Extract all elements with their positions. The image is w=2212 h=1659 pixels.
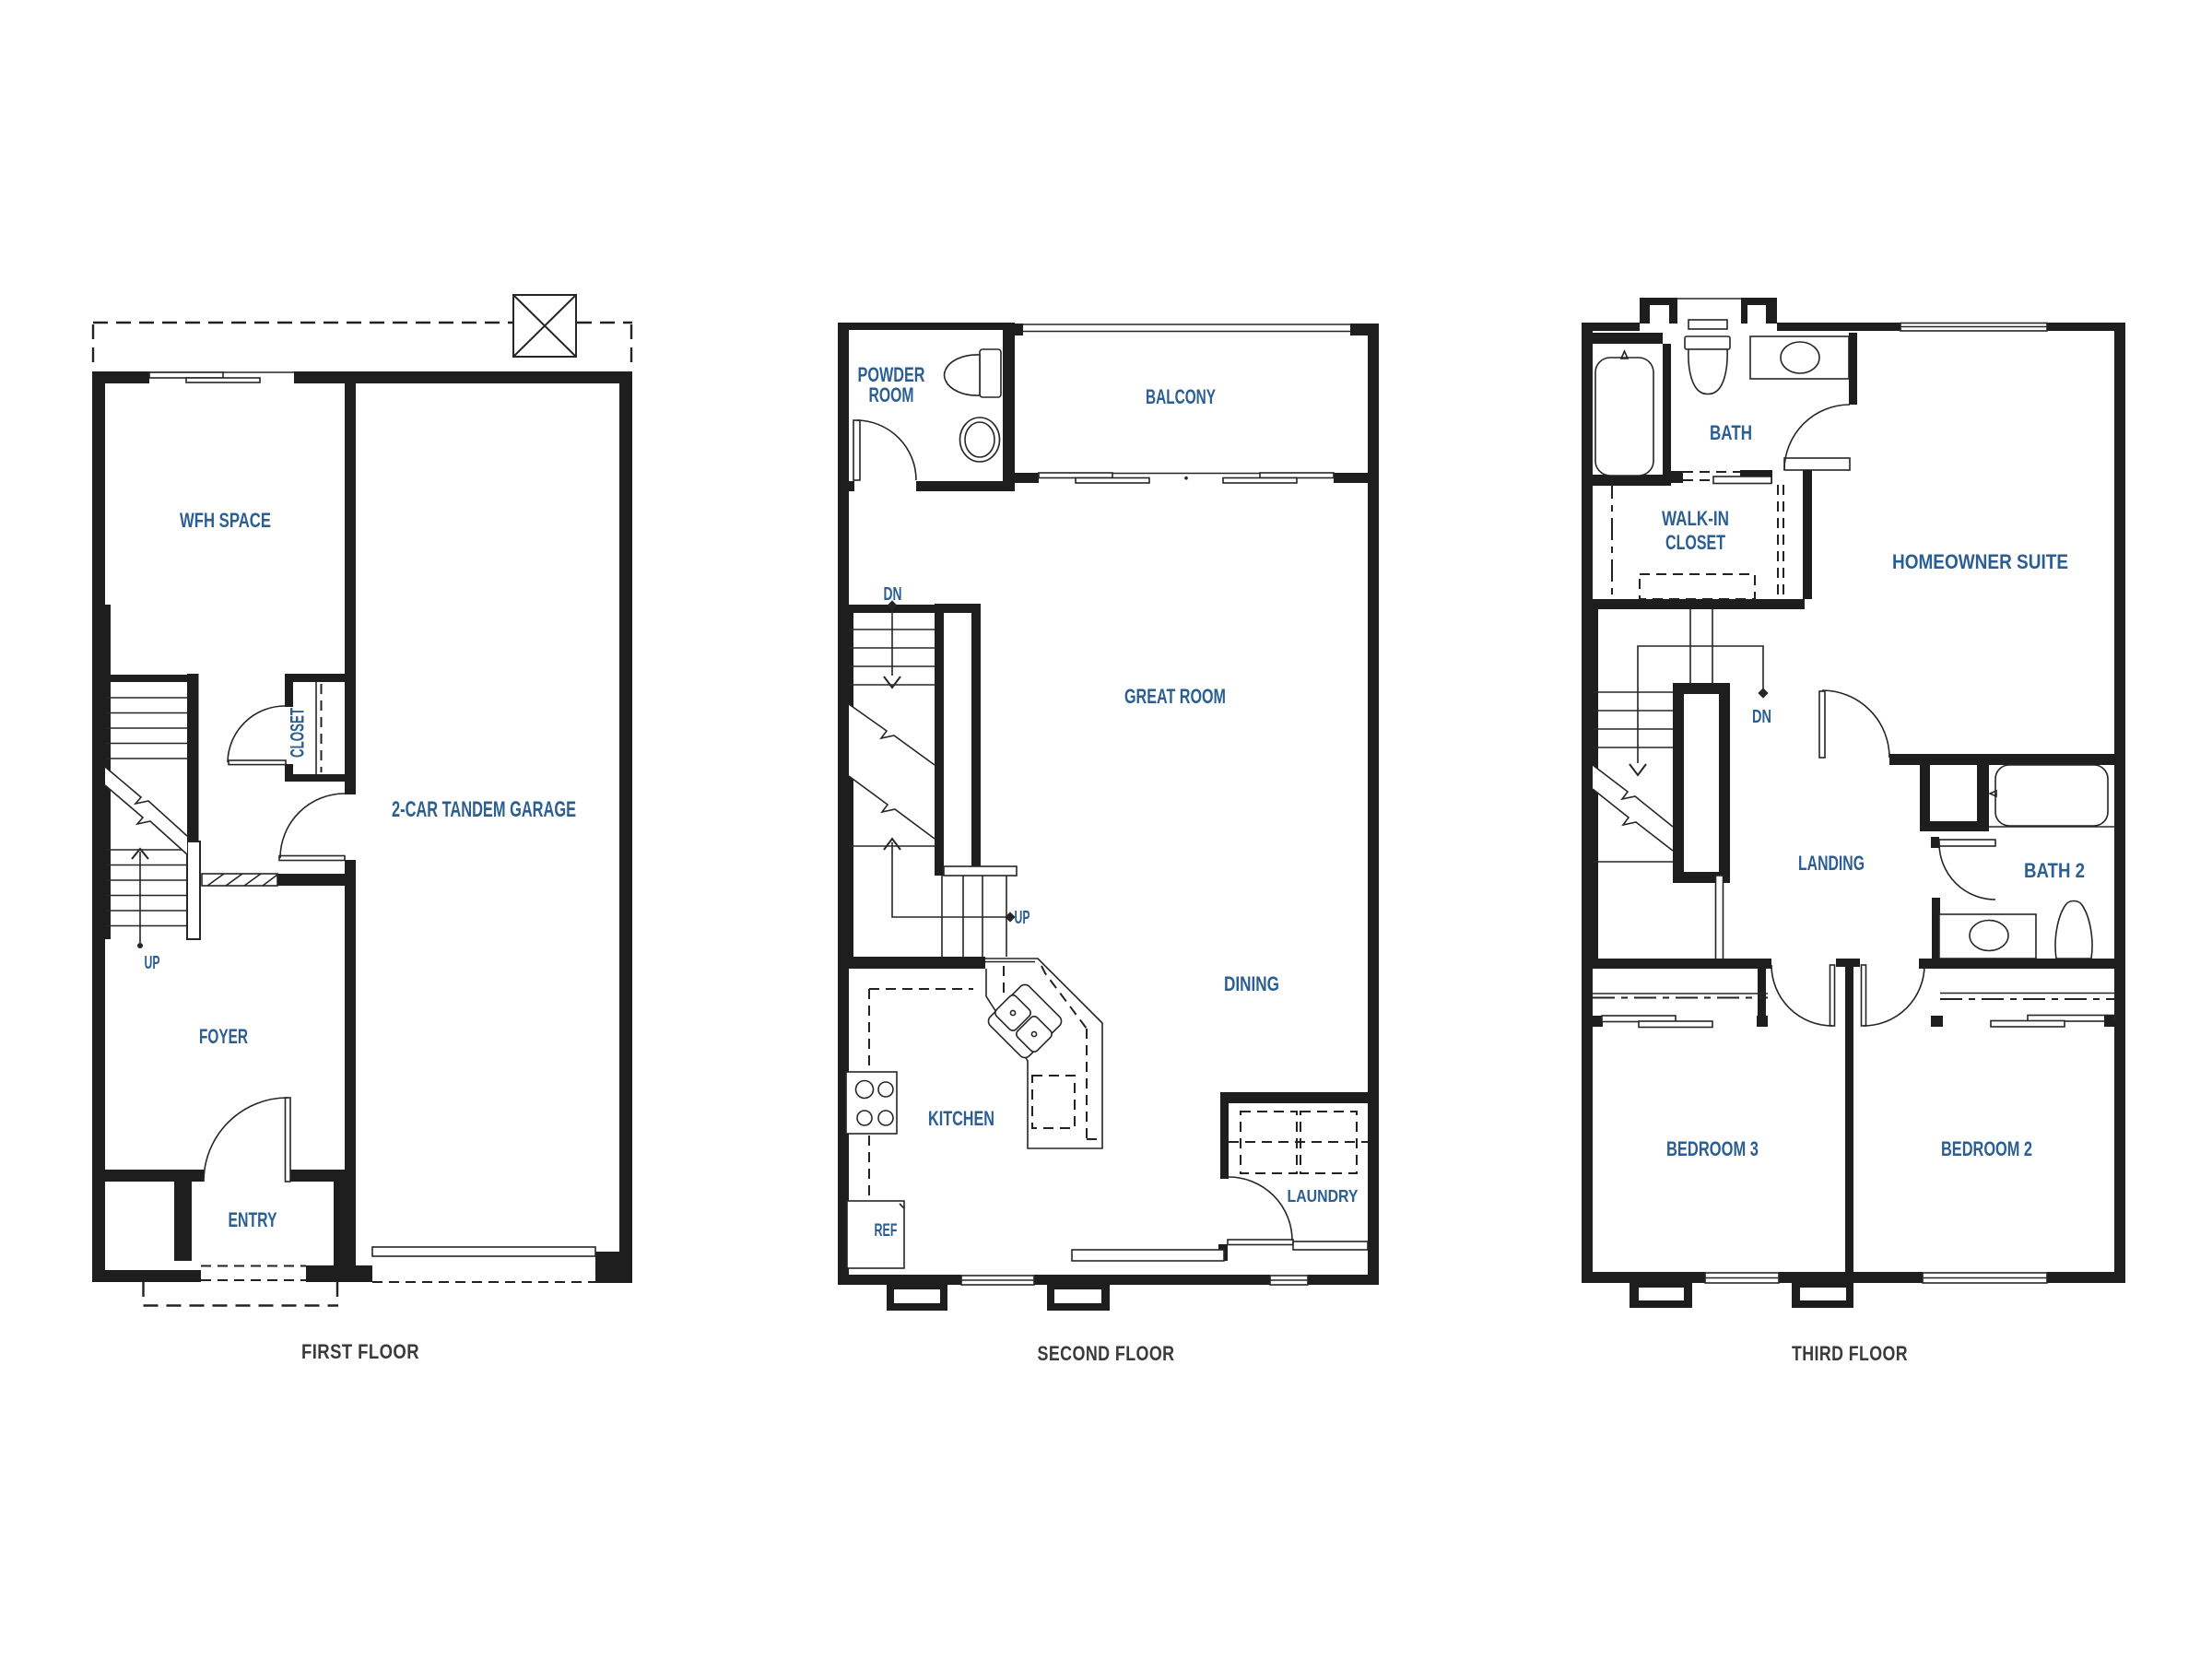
svg-text:WFH SPACE: WFH SPACE bbox=[180, 509, 271, 532]
svg-text:BALCONY: BALCONY bbox=[1146, 385, 1216, 408]
svg-text:CLOSET: CLOSET bbox=[1665, 531, 1725, 554]
svg-text:WALK-IN: WALK-IN bbox=[1662, 507, 1729, 530]
svg-text:BEDROOM 2: BEDROOM 2 bbox=[1941, 1137, 2032, 1160]
svg-text:DN: DN bbox=[884, 584, 902, 605]
svg-text:FOYER: FOYER bbox=[199, 1025, 248, 1048]
svg-text:BATH: BATH bbox=[1710, 421, 1752, 444]
svg-text:DINING: DINING bbox=[1224, 972, 1279, 995]
svg-text:DN: DN bbox=[1752, 707, 1771, 727]
svg-text:LANDING: LANDING bbox=[1798, 852, 1865, 875]
svg-text:BEDROOM 3: BEDROOM 3 bbox=[1666, 1137, 1759, 1160]
svg-text:REF: REF bbox=[875, 1221, 898, 1241]
svg-text:HOMEOWNER SUITE: HOMEOWNER SUITE bbox=[1892, 550, 2068, 573]
svg-text:FIRST FLOOR: FIRST FLOOR bbox=[301, 1340, 419, 1363]
svg-text:THIRD FLOOR: THIRD FLOOR bbox=[1792, 1342, 1908, 1365]
svg-text:GREAT ROOM: GREAT ROOM bbox=[1124, 685, 1226, 708]
svg-text:CLOSET: CLOSET bbox=[288, 708, 309, 758]
svg-text:KITCHEN: KITCHEN bbox=[928, 1107, 994, 1130]
svg-text:ENTRY: ENTRY bbox=[229, 1208, 277, 1231]
svg-text:2-CAR TANDEM GARAGE: 2-CAR TANDEM GARAGE bbox=[392, 797, 576, 822]
svg-text:UP: UP bbox=[145, 953, 160, 973]
svg-text:SECOND FLOOR: SECOND FLOOR bbox=[1038, 1342, 1175, 1365]
svg-text:LAUNDRY: LAUNDRY bbox=[1288, 1187, 1359, 1206]
svg-text:ROOM: ROOM bbox=[869, 383, 914, 406]
svg-text:BATH 2: BATH 2 bbox=[2024, 859, 2085, 882]
svg-text:UP: UP bbox=[1015, 908, 1030, 928]
